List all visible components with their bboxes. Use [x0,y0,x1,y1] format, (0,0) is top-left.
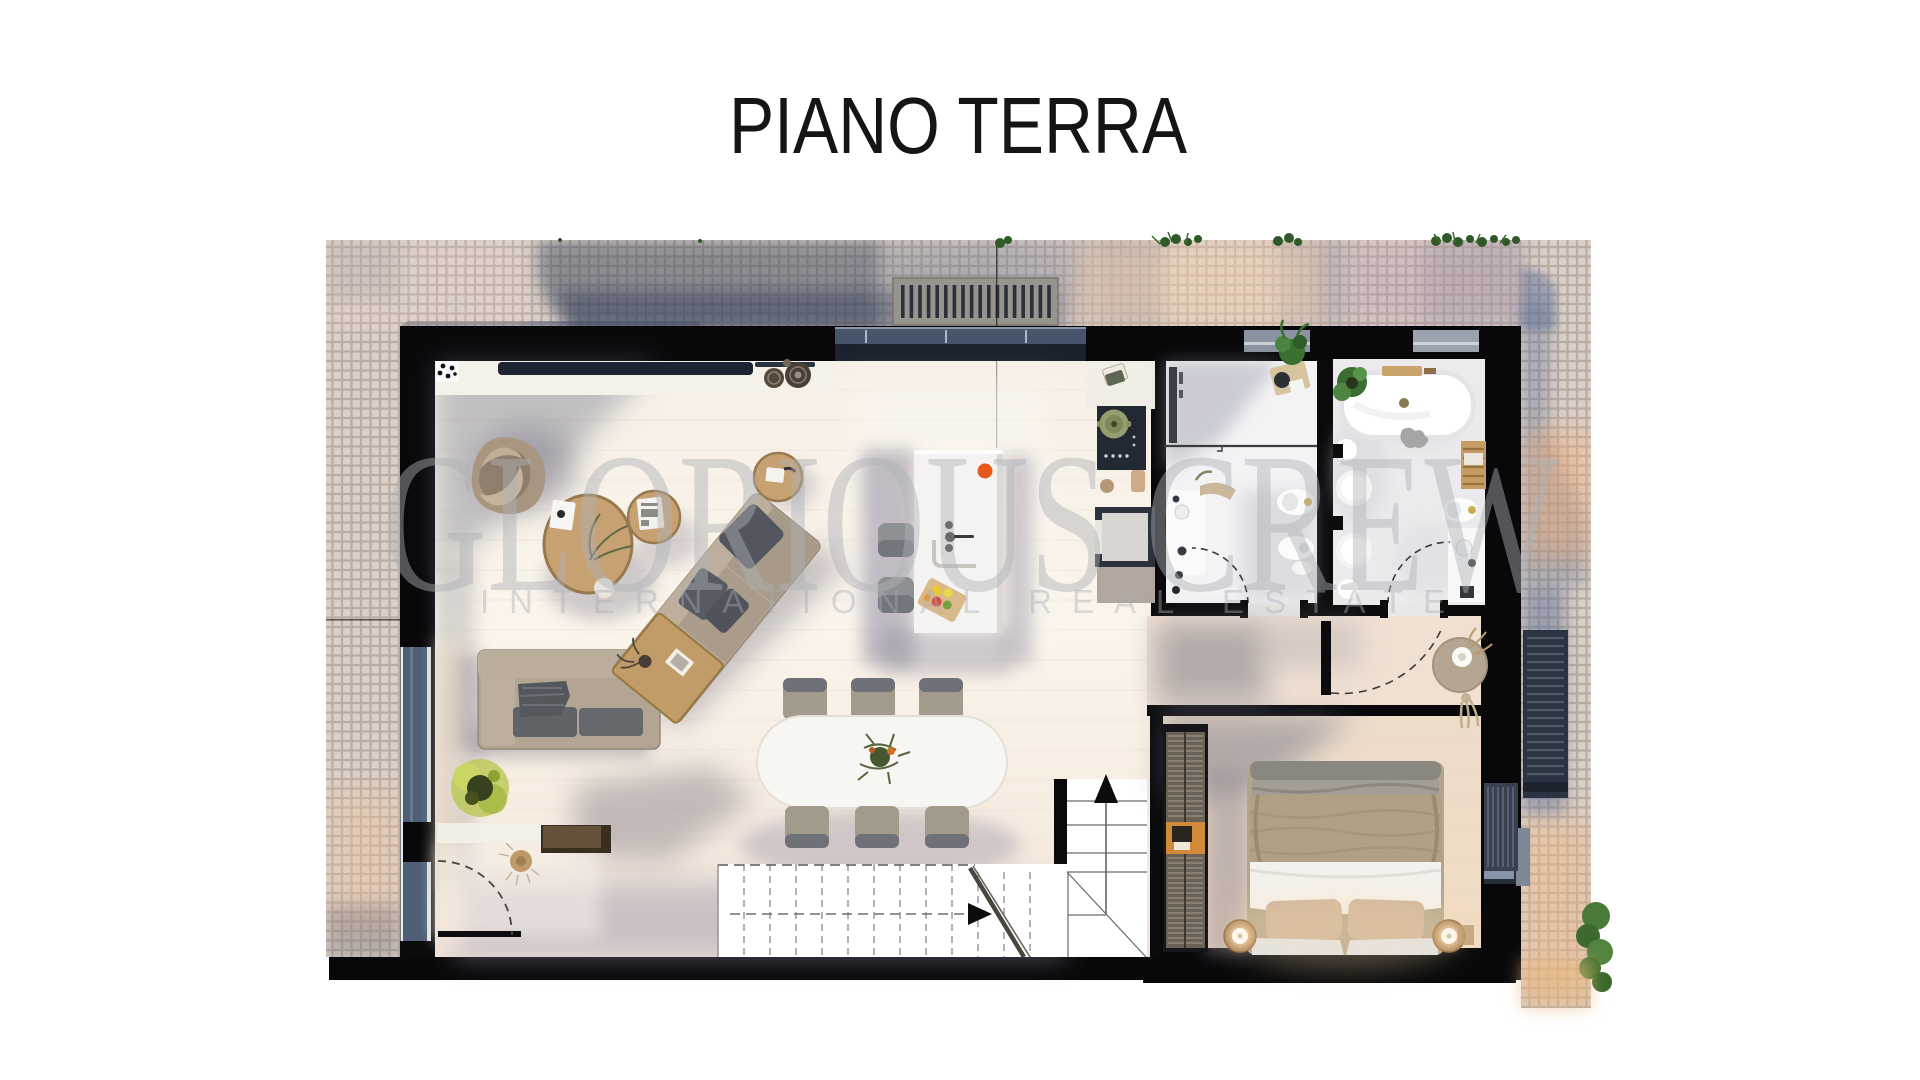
svg-text:PIANO TERRA: PIANO TERRA [729,81,1188,170]
